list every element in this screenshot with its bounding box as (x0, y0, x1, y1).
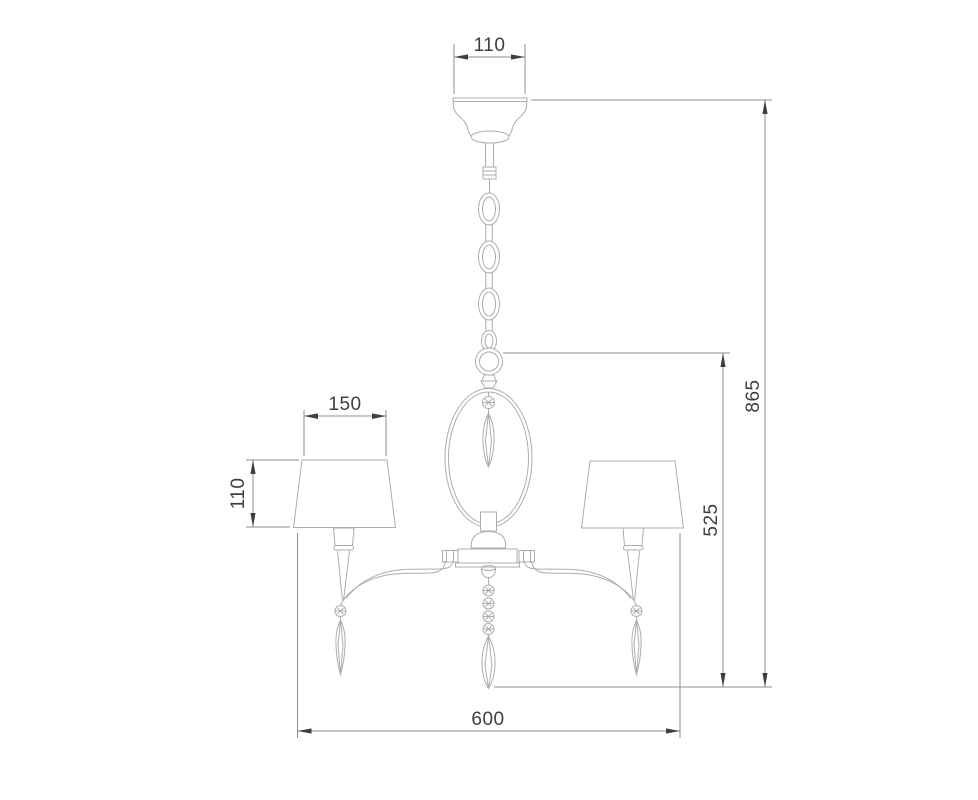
left-candle-cup (334, 528, 355, 550)
center-bead-string (482, 566, 496, 689)
central-hub-body (443, 549, 535, 567)
dimension-label-center-height: 525 (701, 503, 722, 536)
dimension-label-canopy-width: 110 (474, 35, 506, 56)
dimension-label-shade-width: 150 (328, 394, 361, 415)
oval-crystal-drop (483, 392, 495, 467)
right-lamp-shade (582, 461, 684, 528)
right-arm (524, 551, 639, 601)
dimension-shade-height: 110 (228, 460, 299, 527)
hub-upper-connector (471, 512, 505, 548)
left-arm (338, 551, 453, 601)
dimension-label-overall-width: 600 (471, 709, 504, 730)
suspension-ring (476, 348, 503, 375)
left-lamp-shade (294, 460, 396, 528)
chandelier-technical-drawing: 110 150 110 865 525 (0, 0, 978, 800)
ceiling-canopy (453, 98, 527, 143)
dimension-label-shade-height: 110 (228, 478, 249, 510)
canopy-stem (483, 143, 496, 194)
right-candle-cup (623, 528, 644, 550)
dimension-label-overall-height: 865 (743, 379, 764, 412)
dimension-canopy-width: 110 (454, 35, 525, 94)
drawing-canvas: 110 150 110 865 525 (0, 0, 978, 800)
left-crystal-drop (335, 602, 346, 675)
right-crystal-drop (631, 602, 642, 675)
suspension-chain (479, 193, 500, 352)
dimension-shade-width: 150 (304, 394, 386, 456)
finial-collar (481, 375, 497, 388)
